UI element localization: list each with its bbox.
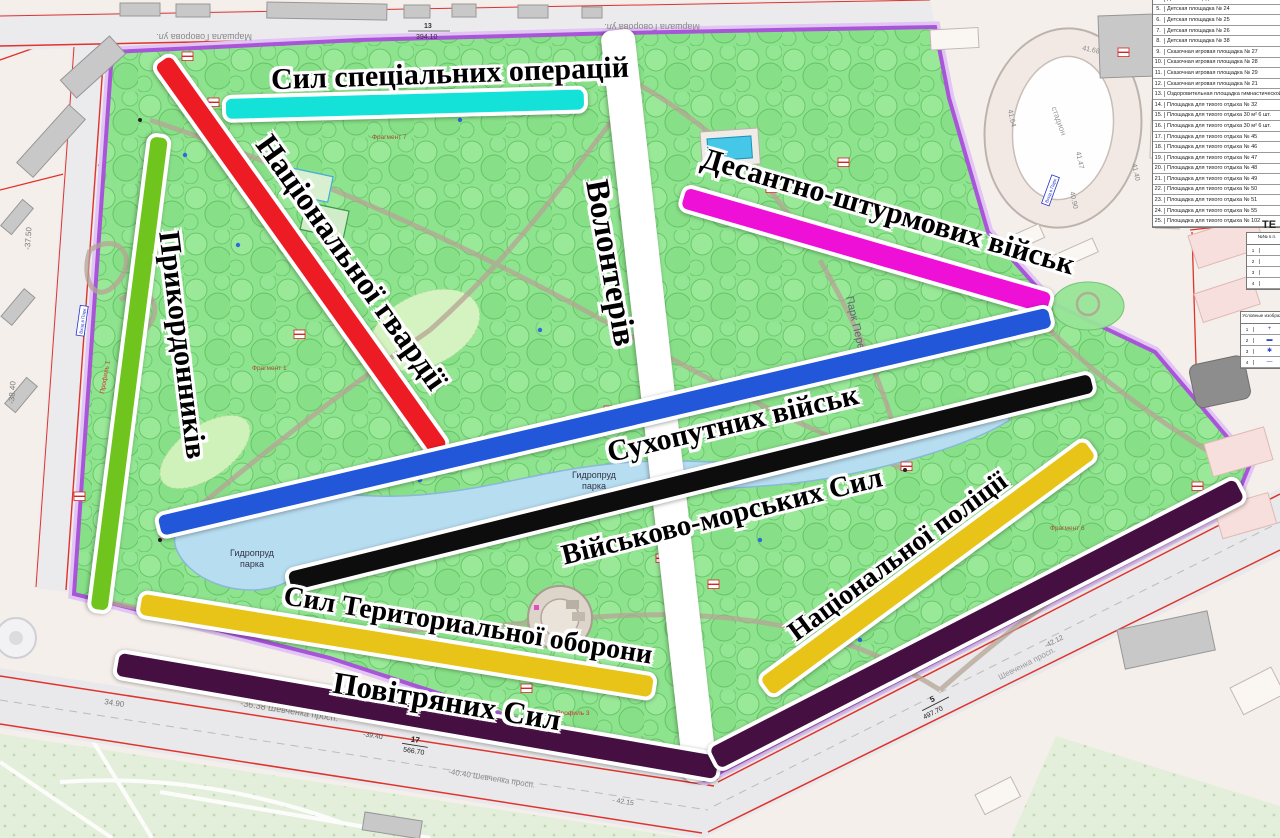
legend-row-number: 9. — [1153, 49, 1165, 55]
symbols-table-row: 3 ✱ — [1241, 346, 1280, 357]
legend-row-number: 13. — [1153, 91, 1165, 97]
position-number: 4 — [1247, 281, 1260, 286]
positions-table-row: 1 — [1247, 245, 1280, 256]
fragment-1-label: Фрагмент 1 — [252, 365, 287, 372]
positions-table-row: 2 — [1247, 256, 1280, 267]
legend-row-number: 22. — [1153, 186, 1165, 192]
legend-row: 10. Сказочная игровая площадка № 28 — [1153, 58, 1280, 69]
legend-row: 23. Площадка для тихого отдыха № 51 — [1153, 195, 1280, 206]
legend-row-text: Сказочная игровая площадка № 29 — [1165, 70, 1258, 76]
positions-table: №№ п.п. 1 2 3 4 — [1246, 232, 1280, 290]
legend-row: 13. Оздоровительная площадка гимнастичес… — [1153, 89, 1280, 100]
legend-row: 8. Детская площадка № 38 — [1153, 36, 1280, 47]
position-number: 2 — [1247, 259, 1260, 264]
measure-top-num: 13 — [424, 23, 432, 30]
legend-row: 24. Площадка для тихого отдыха № 55 — [1153, 206, 1280, 217]
legend-row-text: Площадка для тихого отдыха № 45 — [1165, 134, 1257, 140]
legend-row-number: 18. — [1153, 144, 1165, 150]
park-map: Маршала Говорова ул. Маршала Говорова ул… — [0, 0, 1280, 838]
legend-row-number: 6. — [1153, 17, 1165, 23]
legend-row-number: 24. — [1153, 208, 1165, 214]
legend-row-text: Оздоровительная площадка гимнастической … — [1165, 91, 1280, 97]
symbol-icon: + — [1254, 326, 1280, 332]
legend-row-text: Сказочная игровая площадка № 27 — [1165, 49, 1258, 55]
legend-row-number: 7. — [1153, 28, 1165, 34]
legend-row: 15. Площадка для тихого отдыха 30 м² 6 ш… — [1153, 111, 1280, 122]
symbols-table: Условные изображ. 1 + 2 ▬ 3 ✱ — [1240, 311, 1280, 369]
elevation-38: -38.40 — [7, 380, 18, 404]
symbol-number: 3 — [1241, 349, 1254, 354]
legend-row-number: 5. — [1153, 6, 1165, 12]
legend-row: 11. Сказочная игровая площадка № 29 — [1153, 68, 1280, 79]
legend-row-text: Детская площадка № 25 — [1165, 17, 1230, 23]
positions-table-row: 4 — [1247, 278, 1280, 289]
legend-row-number: 15. — [1153, 112, 1165, 118]
symbols-table-row: 4 — — [1241, 357, 1280, 368]
symbol-number: 4 — [1241, 360, 1254, 365]
legend-row: 16. Площадка для тихого отдыха 30 м² 6 ш… — [1153, 121, 1280, 132]
legend-row-text: Площадка для тихого отдыха № 102 — [1165, 218, 1260, 224]
elevation-37: -37.50 — [23, 226, 34, 250]
legend-row: 20. Площадка для тихого отдыха № 48 — [1153, 164, 1280, 175]
legend-row: 9. Сказочная игровая площадка № 27 — [1153, 47, 1280, 58]
legend-row-text: Детская площадка № 38 — [1165, 38, 1230, 44]
legend-row-text: Площадка для тихого отдыха 30 м² 6 шт. — [1165, 112, 1271, 118]
symbol-icon: ✱ — [1254, 348, 1280, 354]
legend-row-text: Детская площадка № 26 — [1165, 28, 1230, 34]
legend-row-text: Площадка для тихого отдыха № 51 — [1165, 197, 1257, 203]
legend-row: 12. Сказочная игровая площадка № 21 — [1153, 79, 1280, 90]
legend-row-number: 12. — [1153, 81, 1165, 87]
legend-row: 19. Площадка для тихого отдыха № 47 — [1153, 153, 1280, 164]
legend-row-text: Площадка для тихого отдыха № 47 — [1165, 155, 1257, 161]
legend-row-number: 8. — [1153, 38, 1165, 44]
legend-row-number: 14. — [1153, 102, 1165, 108]
pond-label-2-line1: Гидропруд — [230, 548, 275, 558]
legend-row: 6. Детская площадка № 25 — [1153, 15, 1280, 26]
legend-row-text: Площадка для тихого отдыха № 32 — [1165, 102, 1257, 108]
legend-row-text: Площадка для тихого отдыха № 50 — [1165, 186, 1257, 192]
legend-row-number: 11. — [1153, 70, 1165, 76]
pond-label-2-line2: парка — [240, 559, 264, 569]
legend-row-number: 17. — [1153, 134, 1165, 140]
playgrounds-legend-table: 4. Детская площадка № 23 5. Детская площ… — [1152, 0, 1280, 228]
legend-row-number: 25. — [1153, 218, 1165, 224]
hill — [1052, 282, 1124, 330]
pond-label-1-line1: Гидропруд — [572, 470, 617, 480]
symbol-icon: ▬ — [1254, 337, 1280, 343]
legend-row: 5. Детская площадка № 24 — [1153, 5, 1280, 16]
symbol-number: 2 — [1241, 338, 1254, 343]
legend-row-number: 16. — [1153, 123, 1165, 129]
legend-row-text: Площадка для тихого отдыха № 48 — [1165, 165, 1257, 171]
positions-table-row: 3 — [1247, 267, 1280, 278]
symbol-icon: — — [1254, 359, 1280, 365]
legend-row-text: Площадка для тихого отдыха № 55 — [1165, 208, 1257, 214]
legend-row: 14. Площадка для тихого отдыха № 32 — [1153, 100, 1280, 111]
symbols-table-row: 2 ▬ — [1241, 335, 1280, 346]
legend-row: 25. Площадка для тихого отдыха № 102 — [1153, 216, 1280, 227]
legend-row-number: 4. — [1153, 0, 1165, 2]
symbols-table-row: 1 + — [1241, 324, 1280, 335]
tech-table-title: ТЕ — [1262, 219, 1276, 231]
legend-row-text: Площадка для тихого отдыха № 46 — [1165, 144, 1257, 150]
symbol-number: 1 — [1241, 327, 1254, 332]
legend-row-number: 20. — [1153, 165, 1165, 171]
legend-row-text: Детская площадка № 23 — [1165, 0, 1230, 2]
position-number: 3 — [1247, 270, 1260, 275]
legend-row-text: Площадка для тихого отдыха 30 м² 6 шт. — [1165, 123, 1271, 129]
legend-row-number: 19. — [1153, 155, 1165, 161]
fragment-7-label: Фрагмент 7 — [372, 134, 407, 141]
position-number: 1 — [1247, 248, 1260, 253]
legend-row-number: 10. — [1153, 59, 1165, 65]
legend-row-text: Детская площадка № 24 — [1165, 6, 1230, 12]
legend-row-number: 21. — [1153, 176, 1165, 182]
symbols-table-header: Условные изображ. — [1241, 312, 1280, 324]
legend-row-text: Сказочная игровая площадка № 28 — [1165, 59, 1258, 65]
legend-row: 17. Площадка для тихого отдыха № 45 — [1153, 132, 1280, 143]
legend-row-text: Площадка для тихого отдыха № 49 — [1165, 176, 1257, 182]
legend-row: 7. Детская площадка № 26 — [1153, 26, 1280, 37]
roundabout — [0, 618, 36, 658]
legend-row: 22. Площадка для тихого отдыха № 50 — [1153, 185, 1280, 196]
measure-top-val: 394.10 — [416, 34, 438, 41]
legend-row-text: Сказочная игровая площадка № 21 — [1165, 81, 1258, 87]
street-label-top-1: Маршала Говорова ул. — [156, 32, 252, 42]
legend-row: 21. Площадка для тихого отдыха № 49 — [1153, 174, 1280, 185]
positions-table-header: №№ п.п. — [1247, 233, 1280, 245]
fragment-6-label: Фрагмент 6 — [1050, 525, 1085, 532]
legend-row: 18. Площадка для тихого отдыха № 46 — [1153, 142, 1280, 153]
legend-row-number: 23. — [1153, 197, 1165, 203]
